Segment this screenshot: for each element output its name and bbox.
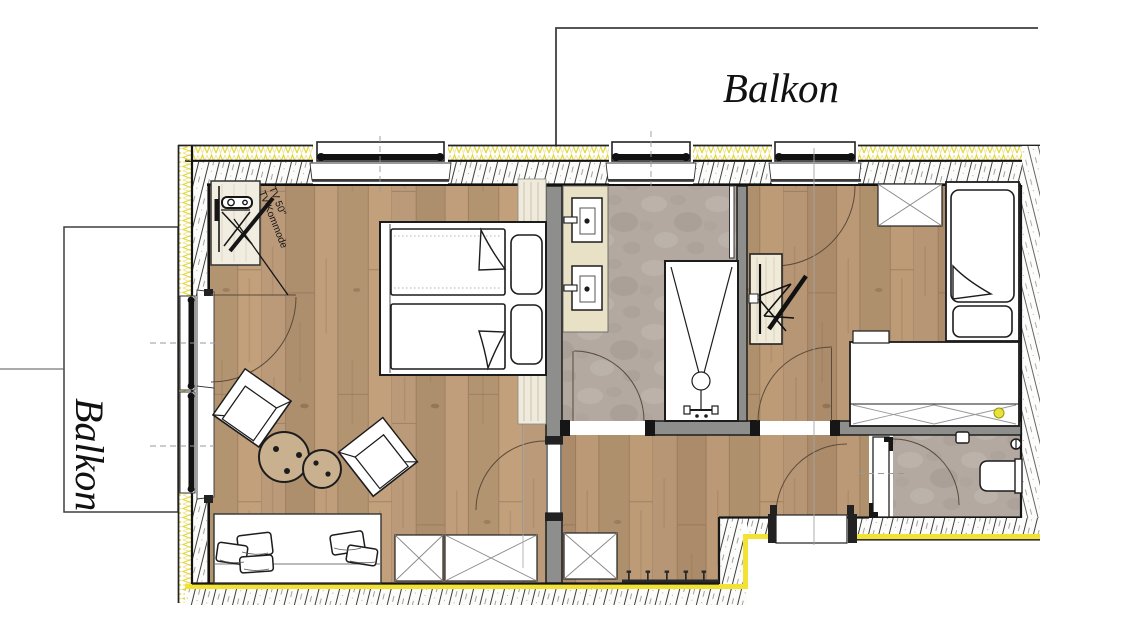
svg-text:Balkon: Balkon: [723, 65, 839, 111]
svg-text:Balkon: Balkon: [67, 398, 112, 511]
